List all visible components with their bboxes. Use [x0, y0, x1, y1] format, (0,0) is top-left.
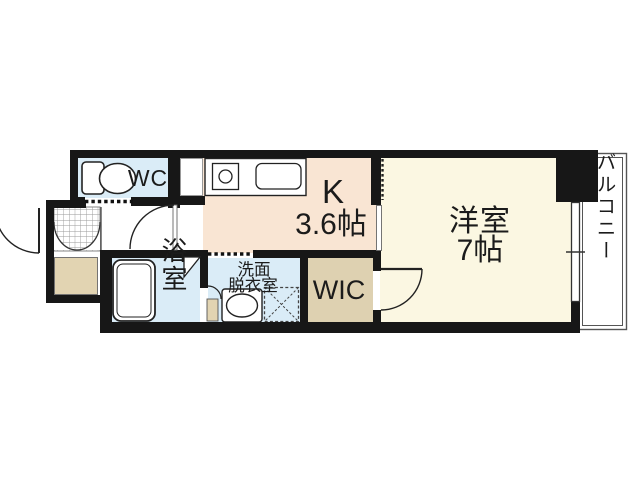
wall-bottom	[100, 322, 580, 333]
pillar-top-right	[556, 150, 598, 202]
genkan-step	[55, 258, 98, 295]
floorplan-drawing: WC K 3.6帖 洋室 7帖 浴室 洗面 脱衣室 WIC バルコニー	[0, 0, 640, 480]
stove-icon	[213, 164, 239, 190]
wall-mid-right	[253, 250, 381, 258]
wall-kitchen-room	[371, 150, 381, 205]
wc-label: WC	[128, 165, 168, 191]
kitchen-counter	[205, 159, 306, 196]
floorplan-page: WC K 3.6帖 洋室 7帖 浴室 洗面 脱衣室 WIC バルコニー	[0, 0, 640, 480]
bathroom-label: 浴室	[158, 237, 188, 293]
wall-genkan-left	[46, 200, 54, 303]
wall-top	[70, 150, 598, 158]
balcony-label: バルコニー	[593, 152, 615, 262]
kitchen-sink-icon	[256, 164, 301, 190]
western-room-size-label: 7帖	[457, 234, 504, 267]
wall-wic-right-upper	[373, 250, 381, 271]
wic-label: WIC	[313, 275, 365, 305]
kitchen-size-label: 3.6帖	[295, 208, 367, 241]
pillar-bottom-right	[571, 301, 580, 326]
fridge-space	[181, 159, 203, 196]
kitchen-label: K	[322, 173, 344, 210]
entry-door-swing-icon	[0, 208, 39, 253]
kitchen-room-partition	[377, 206, 382, 251]
wall-bath-left	[100, 250, 112, 330]
wall-hall-kitchen-stub	[172, 196, 205, 205]
wall-bath-wash-divider	[200, 250, 208, 288]
wall-wic-left	[300, 252, 308, 330]
bathtub-icon	[113, 260, 155, 321]
washroom-label-line2: 脱衣室	[228, 276, 278, 295]
washroom-side-cabinet	[207, 299, 218, 321]
